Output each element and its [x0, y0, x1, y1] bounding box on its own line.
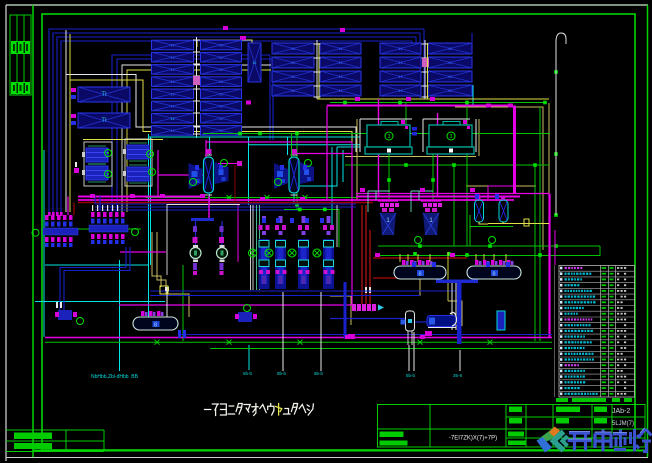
svg-text:3: 3 [388, 134, 391, 140]
svg-text:8: 8 [492, 272, 495, 278]
svg-text:8: 8 [154, 323, 157, 329]
svg-text:35-8: 35-8 [453, 373, 463, 378]
svg-text:5LJM(7): 5LJM(7) [612, 421, 634, 427]
svg-text:3: 3 [450, 134, 453, 140]
svg-text:8b-b: 8b-b [277, 371, 287, 376]
svg-text:JAb-2: JAb-2 [612, 408, 630, 415]
svg-text:5b-b: 5b-b [243, 371, 253, 376]
svg-text:TI: TI [101, 118, 107, 124]
svg-text:8: 8 [418, 272, 421, 278]
svg-text:5b-b: 5b-b [406, 373, 416, 378]
svg-text:NbHbb,Zbl-dHbb BB: NbHbb,Zbl-dHbb BB [91, 374, 139, 380]
svg-text:-7EI7ZK)X(7)+7P): -7EI7ZK)X(7)+7P) [449, 436, 497, 442]
svg-text:TI: TI [101, 92, 107, 98]
svg-text:5b-b: 5b-b [314, 371, 324, 376]
